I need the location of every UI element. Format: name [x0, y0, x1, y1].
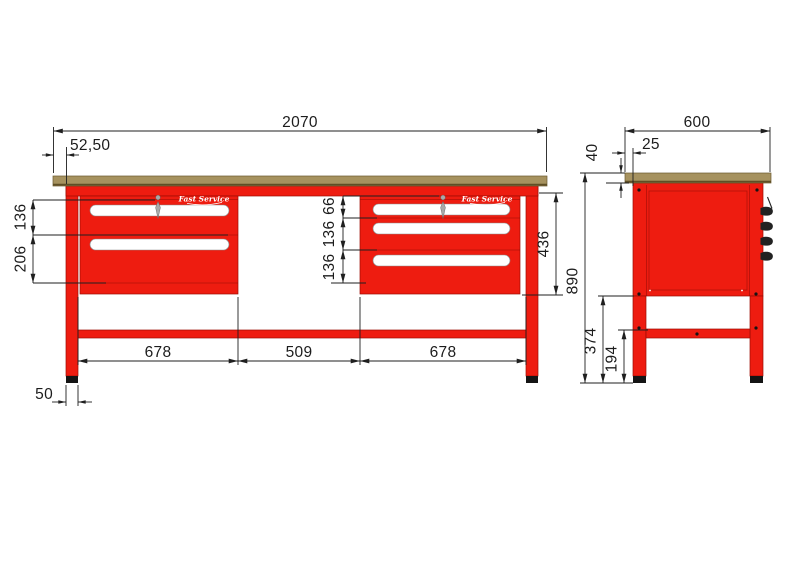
- dim-label-stretcher-clearance: 194: [604, 346, 621, 373]
- dim-label-worktop-thickness: 40: [584, 144, 601, 162]
- dim-arrow: [633, 151, 641, 155]
- dim-label-underbody-height: 374: [583, 328, 600, 355]
- side-rear-leg: [750, 296, 763, 376]
- dim-arrow: [78, 400, 86, 404]
- front-right-leg: [526, 186, 538, 376]
- dim-foot-width: 50: [35, 385, 92, 406]
- dim-worktop-thickness: 40: [584, 144, 629, 198]
- dim-label-top-inset: 25: [642, 136, 660, 153]
- dim-label-span-right: 678: [430, 344, 457, 361]
- foot: [66, 376, 78, 383]
- dim-label-right-bottom: 136: [321, 254, 338, 281]
- dim-label-total-width: 2070: [282, 114, 318, 131]
- dim-label-total-height: 890: [565, 268, 582, 295]
- drawer-slot: [373, 223, 510, 234]
- dim-label-left-drawer1: 136: [13, 204, 30, 231]
- drawing-canvas: Fast Service Fast Service 2070: [0, 0, 800, 566]
- foot: [750, 376, 763, 383]
- dim-arrow: [619, 183, 623, 191]
- dim-label-right-mid: 136: [321, 221, 338, 248]
- leg-feet: [66, 376, 763, 383]
- dim-arrow: [46, 153, 54, 157]
- dim-total-width: 2070: [54, 114, 547, 173]
- drawer-slot: [90, 239, 229, 250]
- dim-label-left-drawer2: 206: [13, 246, 30, 273]
- foot: [633, 376, 646, 383]
- dim-label-right-top: 66: [321, 197, 338, 215]
- side-front-leg: [633, 296, 646, 376]
- side-body-panel: [633, 183, 763, 296]
- workbench-drawing: Fast Service Fast Service 2070: [0, 0, 800, 566]
- hook-icon: [761, 207, 773, 216]
- dim-arrow: [58, 400, 66, 404]
- dim-label-span-center: 509: [286, 344, 313, 361]
- dim-arrow: [619, 165, 623, 173]
- hook-icon: [761, 222, 773, 231]
- dim-label-foot-width: 50: [35, 386, 53, 403]
- hook-icon: [761, 252, 773, 261]
- hook-rod-icon: [768, 197, 773, 209]
- dim-label-overhang: 52,50: [70, 137, 110, 154]
- hook-icon: [761, 237, 773, 246]
- drawer-slot: [373, 255, 510, 266]
- dim-arrow: [617, 151, 625, 155]
- front-left-leg: [66, 186, 78, 376]
- dim-label-cabinet-height: 436: [536, 231, 553, 258]
- front-stretcher-beam: [78, 330, 526, 338]
- dim-label-depth: 600: [684, 114, 711, 131]
- dim-label-span-left: 678: [145, 344, 172, 361]
- foot: [526, 376, 538, 383]
